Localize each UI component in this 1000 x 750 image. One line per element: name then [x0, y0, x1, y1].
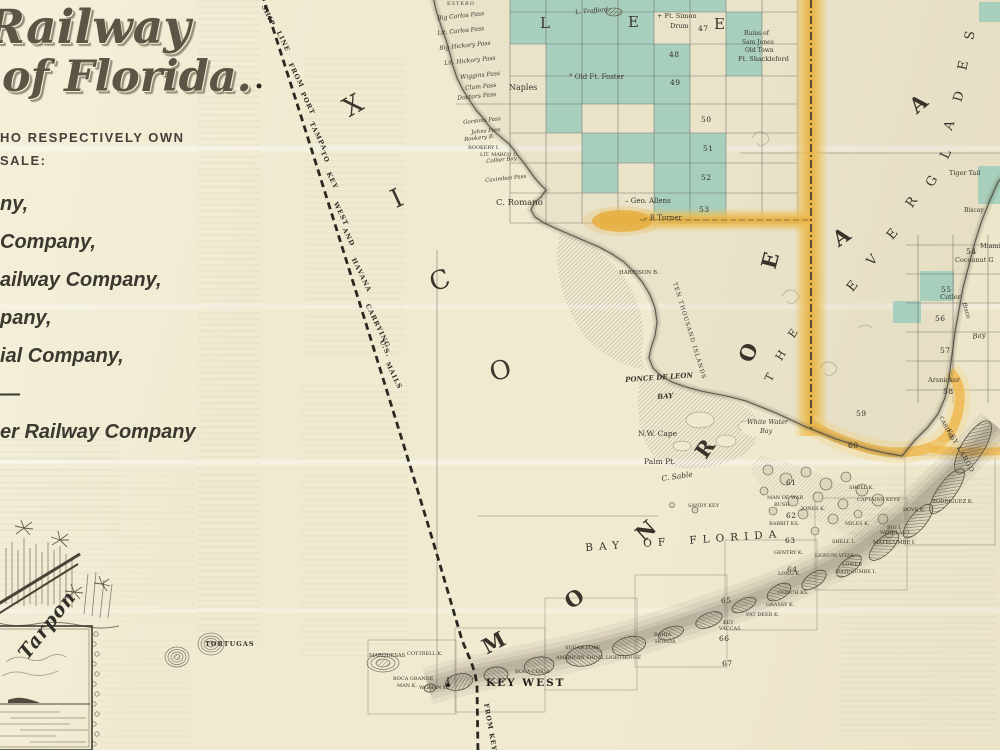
company-item: ny, [0, 185, 196, 223]
company-item: pany, [0, 299, 196, 337]
company-item: ial Company, [0, 337, 196, 375]
company-item: er Railway Company [0, 413, 196, 451]
company-item: Company, [0, 223, 196, 261]
marquesas-keys [367, 654, 399, 672]
legend-panel: Railway of Florida. HO RESPECTIVELY OWN … [0, 0, 270, 750]
legend-intro-line2: SALE: [0, 153, 47, 168]
legend-intro-line1: HO RESPECTIVELY OWN [0, 130, 185, 145]
company-item: — [0, 375, 196, 413]
vignette-caption: Tarpon [14, 587, 81, 664]
map-title-line2: of Florida. [2, 52, 252, 102]
map-title-line1: Railway [0, 0, 191, 55]
lake-trafford [606, 8, 622, 16]
map-sheet: Railway of Florida. HO RESPECTIVELY OWN … [0, 0, 1000, 750]
company-list: ny,Company,ailway Company,pany,ial Compa… [0, 185, 196, 451]
steamship-route-line [257, 0, 479, 750]
company-item: ailway Company, [0, 261, 196, 299]
mainland-coastline [432, 0, 1000, 456]
